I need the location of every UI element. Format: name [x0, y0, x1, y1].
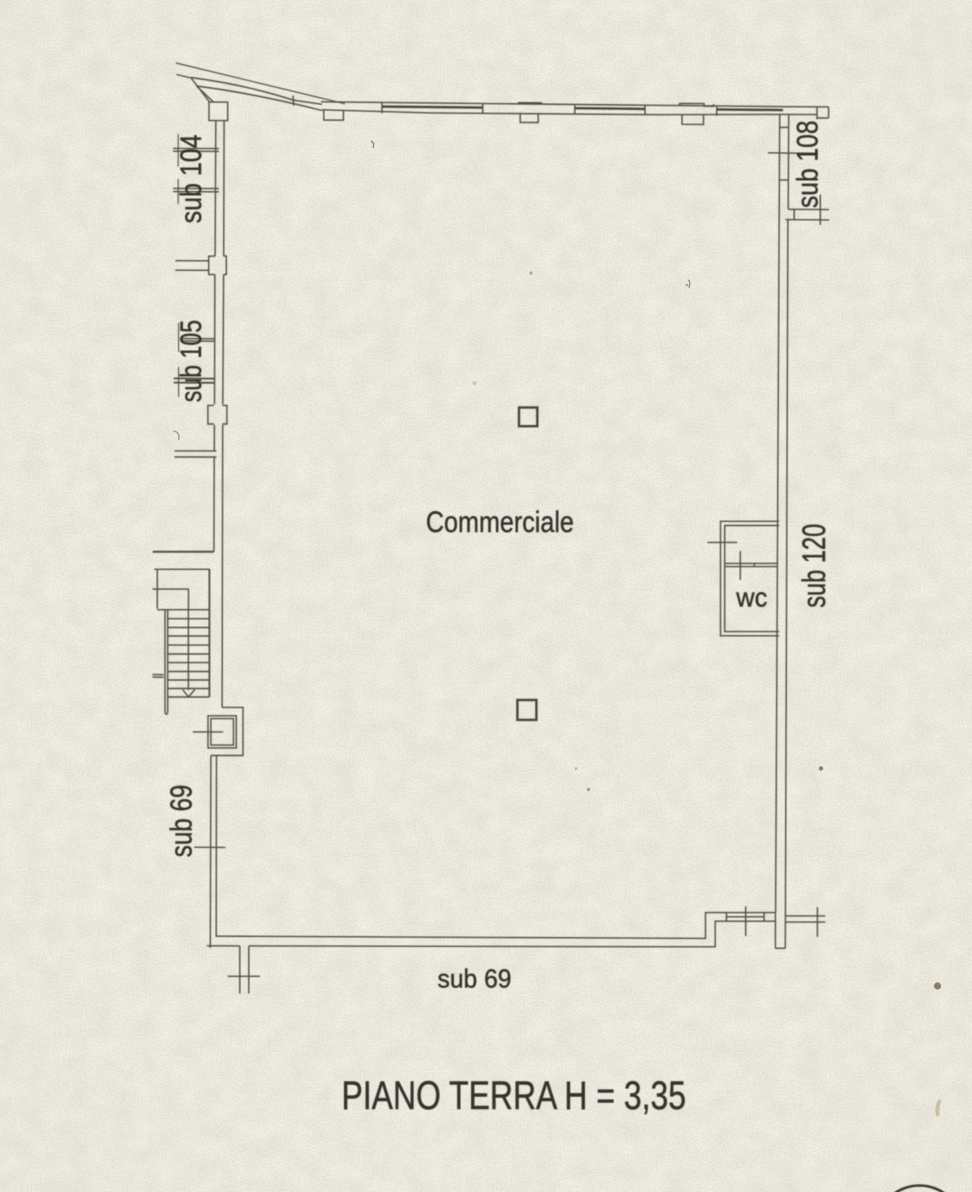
- svg-text:Commerciale: Commerciale: [426, 506, 574, 539]
- svg-text:sub 69: sub 69: [438, 963, 512, 993]
- svg-text:sub 108: sub 108: [792, 121, 825, 209]
- svg-text:PIANO TERRA H = 3,35: PIANO TERRA H = 3,35: [342, 1074, 687, 1118]
- svg-text:wc: wc: [735, 583, 767, 613]
- svg-text:sub 69: sub 69: [163, 785, 198, 858]
- svg-text:sub 104: sub 104: [175, 134, 208, 223]
- svg-text:sub 105: sub 105: [175, 320, 208, 403]
- svg-text:sub 120: sub 120: [796, 524, 832, 608]
